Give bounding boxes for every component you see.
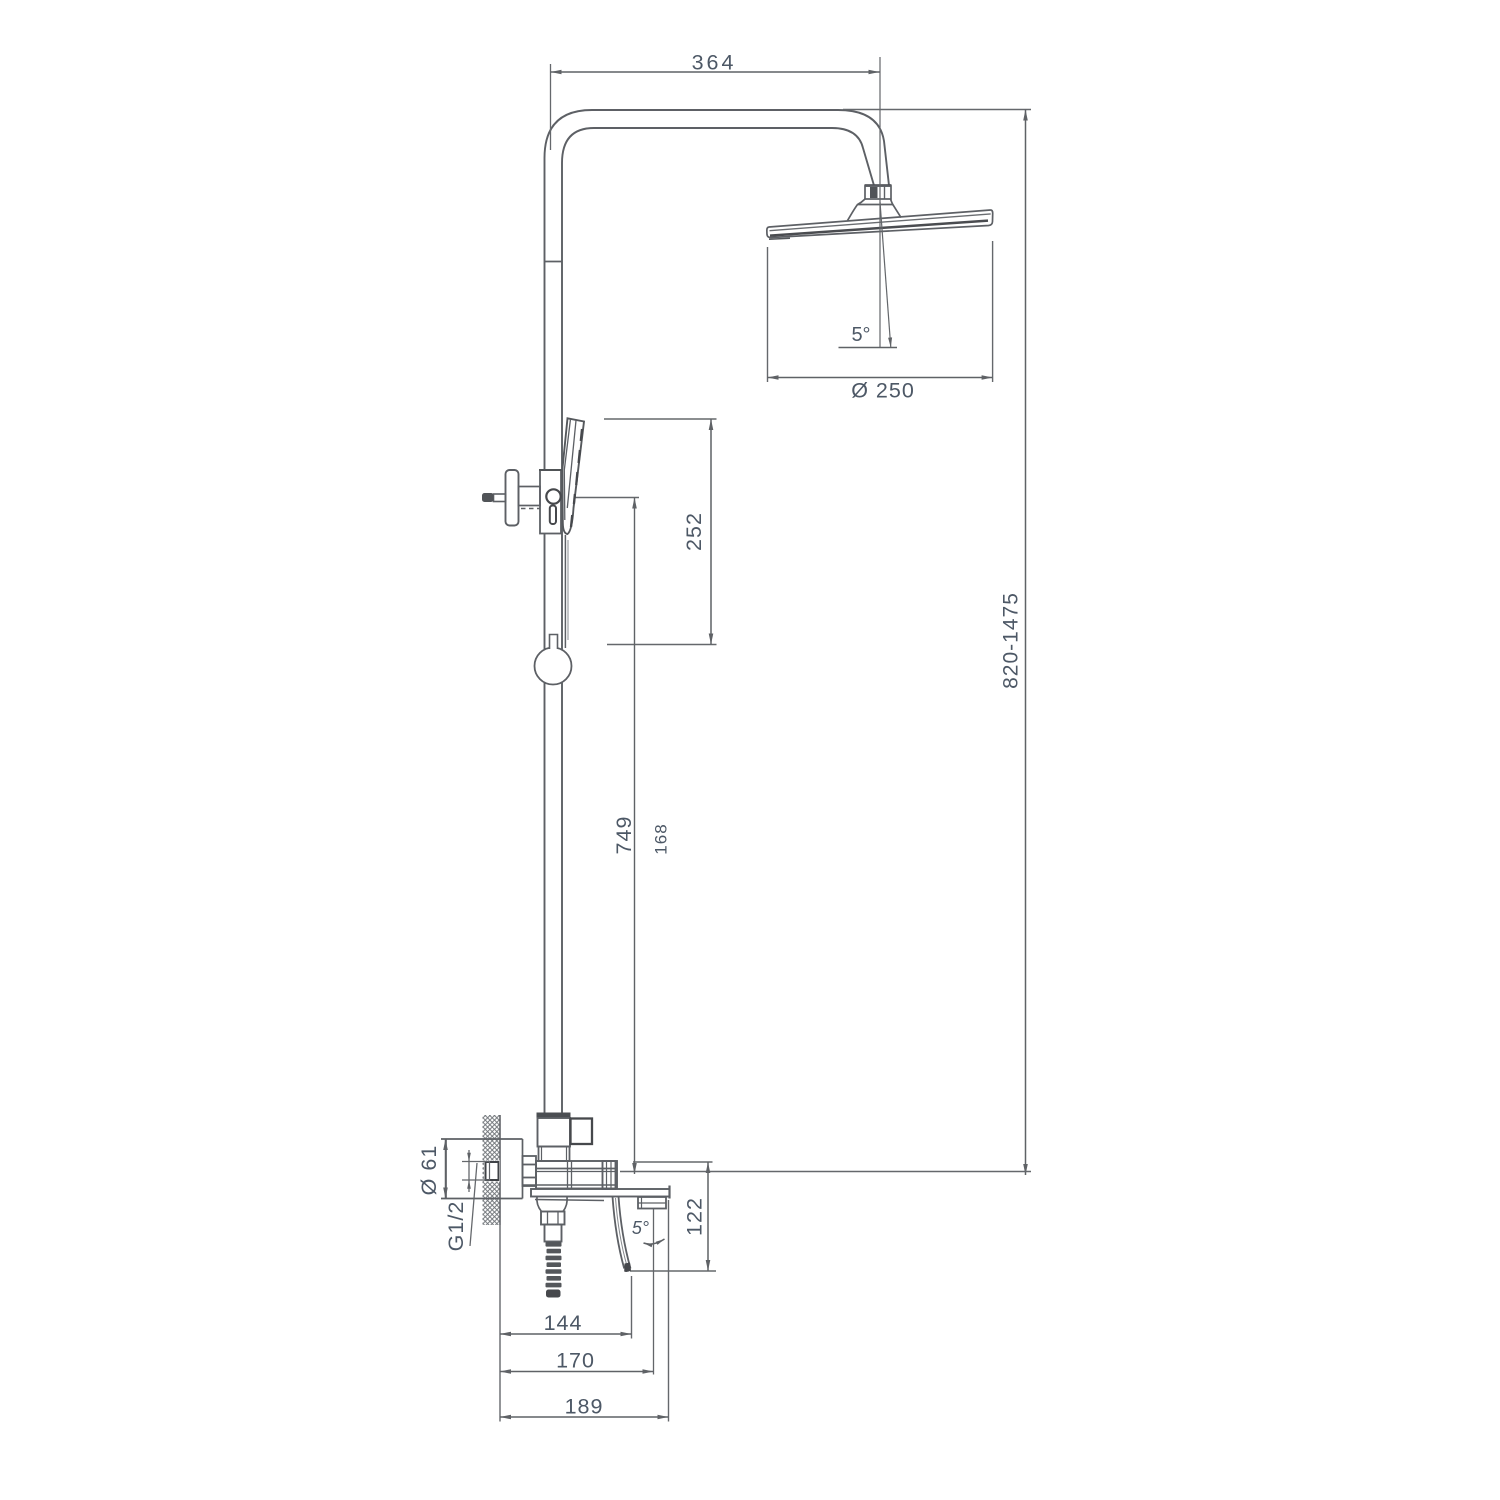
svg-text:5°: 5° (632, 1218, 649, 1238)
svg-text:364: 364 (692, 51, 737, 75)
svg-text:G1/2: G1/2 (444, 1201, 468, 1252)
svg-text:749: 749 (612, 816, 636, 855)
svg-text:170: 170 (556, 1349, 595, 1373)
svg-text:189: 189 (565, 1395, 604, 1419)
svg-text:5°: 5° (851, 324, 870, 346)
svg-text:252: 252 (682, 512, 706, 551)
svg-text:144: 144 (544, 1311, 583, 1335)
svg-text:122: 122 (683, 1197, 707, 1236)
svg-text:Ø 61: Ø 61 (417, 1145, 441, 1196)
svg-text:168: 168 (652, 823, 671, 854)
svg-text:Ø 250: Ø 250 (851, 379, 915, 403)
svg-text:820-1475: 820-1475 (1000, 592, 1023, 689)
